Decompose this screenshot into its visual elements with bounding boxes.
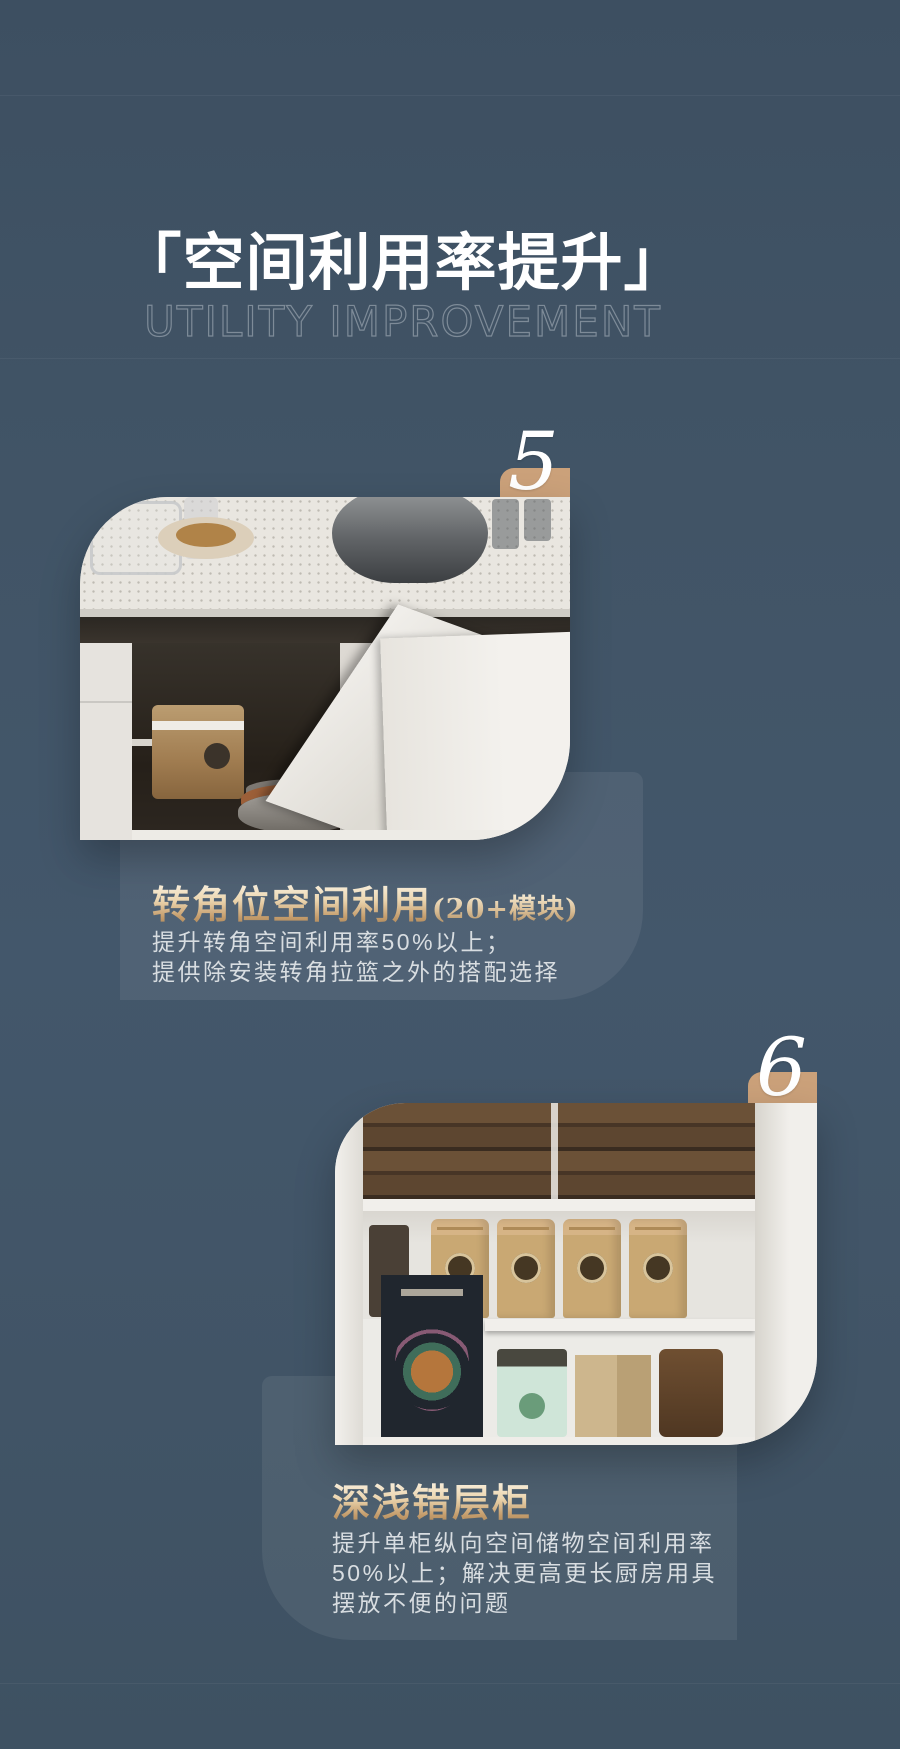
blender-appliance <box>152 705 244 799</box>
steel-bowl <box>332 497 488 583</box>
corner-cabinet-photo <box>80 497 570 840</box>
pantry-shelf <box>485 1319 755 1331</box>
section-5-heading-text: 转角位空间利用 <box>152 882 432 927</box>
promo-page: 「空间利用率提升」 UTILITY IMPROVEMENT 5 转角位空间利用(… <box>0 0 900 1749</box>
cabinet-side-panel <box>755 1103 817 1445</box>
kraft-boxes <box>575 1355 651 1437</box>
background-seam <box>0 95 900 96</box>
cereal-package <box>497 1349 567 1437</box>
drinking-glass <box>492 499 519 549</box>
description-line: 提升转角空间利用率50%以上； <box>152 927 560 957</box>
section-5-heading: 转角位空间利用(20+模块) <box>152 874 579 929</box>
stepped-pantry-photo <box>335 1103 817 1445</box>
description-line: 提供除安装转角拉篮之外的搭配选择 <box>152 957 560 987</box>
page-title: 「空间利用率提升」 <box>119 212 686 302</box>
counter-edge <box>80 609 570 617</box>
decorated-cocoa-box <box>381 1275 483 1437</box>
description-line: 50%以上；解决更高更长厨房用具 <box>332 1558 717 1588</box>
brown-sack <box>659 1349 723 1437</box>
cabinet-base <box>335 1437 755 1445</box>
section-5-description: 提升转角空间利用率50%以上； 提供除安装转角拉篮之外的搭配选择 <box>152 927 560 987</box>
background-seam <box>0 1683 900 1684</box>
coffee-bag <box>563 1219 621 1318</box>
section-6-description: 提升单柜纵向空间储物空间利用率 50%以上；解决更高更长厨房用具 摆放不便的问题 <box>332 1528 717 1618</box>
drawer-front <box>80 643 132 840</box>
toe-kick <box>132 830 570 840</box>
pantry-shelf <box>335 1199 755 1211</box>
section-6-heading-text: 深浅错层柜 <box>332 1480 532 1525</box>
section-6-number: 6 <box>756 1028 807 1108</box>
cabinet-frame <box>335 1103 363 1445</box>
drinking-glass <box>524 499 551 541</box>
section-5-heading-note: (20+模块) <box>432 894 579 925</box>
snack-plate <box>158 517 254 559</box>
cabinet-door <box>380 632 570 840</box>
section-5-number: 5 <box>508 422 559 502</box>
coffee-bag <box>497 1219 555 1318</box>
stacked-boxes <box>363 1103 755 1199</box>
coffee-bag <box>629 1219 687 1318</box>
description-line: 摆放不便的问题 <box>332 1588 717 1618</box>
page-subtitle: UTILITY IMPROVEMENT <box>144 297 662 346</box>
background-seam <box>0 358 900 359</box>
section-6-heading: 深浅错层柜 <box>332 1472 532 1527</box>
description-line: 提升单柜纵向空间储物空间利用率 <box>332 1528 717 1558</box>
